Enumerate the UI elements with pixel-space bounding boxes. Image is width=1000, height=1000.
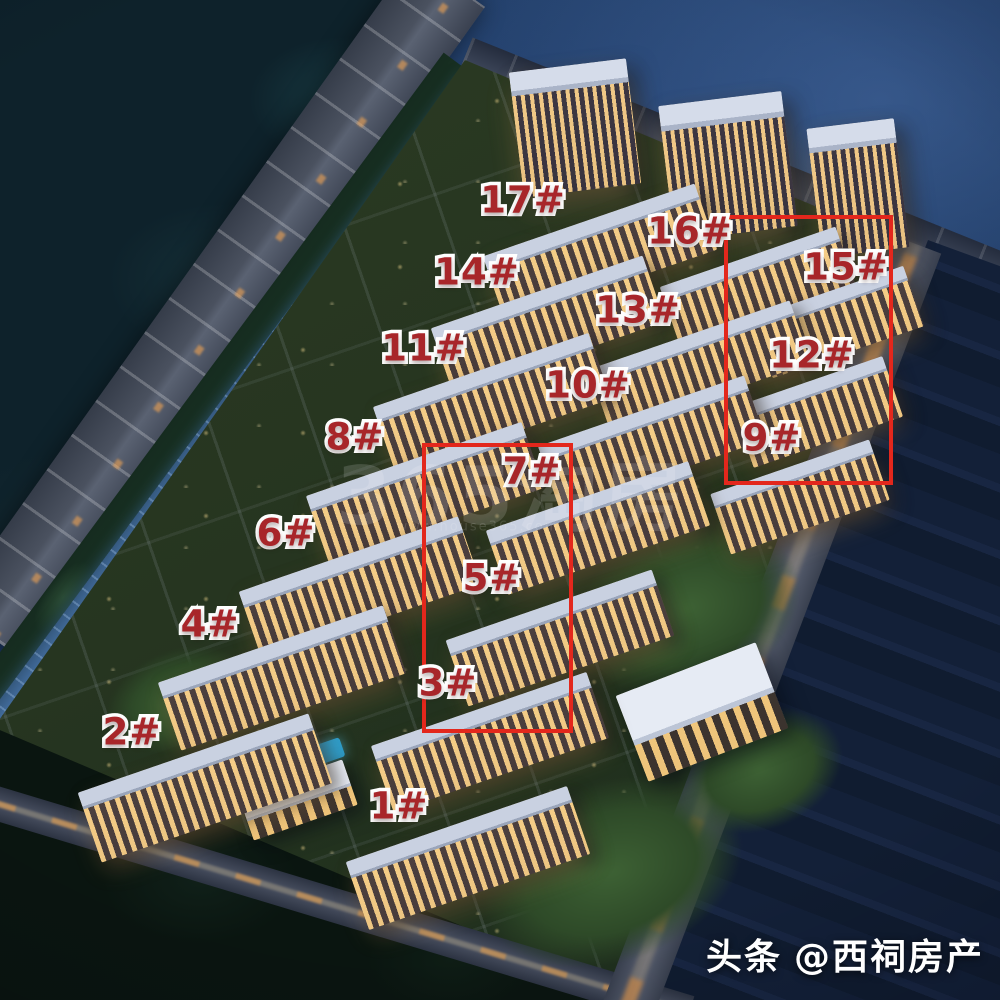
building-label-11: 11# <box>381 327 467 370</box>
building-label-16: 16# <box>647 210 733 253</box>
building-label-2: 2# <box>103 711 162 754</box>
attribution-handle: @西祠房产 <box>794 937 984 978</box>
building-label-3: 3# <box>419 662 478 705</box>
building-label-17: 17# <box>480 179 566 222</box>
aerial-site-plan-rendering: 1#2#3#4#5#6#7#8#9#10#11#12#13#14#15#16#1… <box>0 0 1000 1000</box>
attribution-source: 头条 <box>706 937 782 978</box>
building-label-10: 10# <box>545 364 631 407</box>
building-label-12: 12# <box>769 334 855 377</box>
building-label-8: 8# <box>326 416 385 459</box>
building-label-4: 4# <box>181 603 240 646</box>
building-label-9: 9# <box>743 417 802 460</box>
building-label-13: 13# <box>595 289 681 332</box>
building-label-1: 1# <box>370 785 429 828</box>
building-label-14: 14# <box>434 251 520 294</box>
building-label-7: 7# <box>503 450 562 493</box>
building-labels-layer: 1#2#3#4#5#6#7#8#9#10#11#12#13#14#15#16#1… <box>0 0 1000 1000</box>
building-label-6: 6# <box>257 512 316 555</box>
building-label-15: 15# <box>803 246 889 289</box>
building-label-5: 5# <box>463 557 522 600</box>
attribution: 头条@西祠房产 <box>706 928 984 980</box>
